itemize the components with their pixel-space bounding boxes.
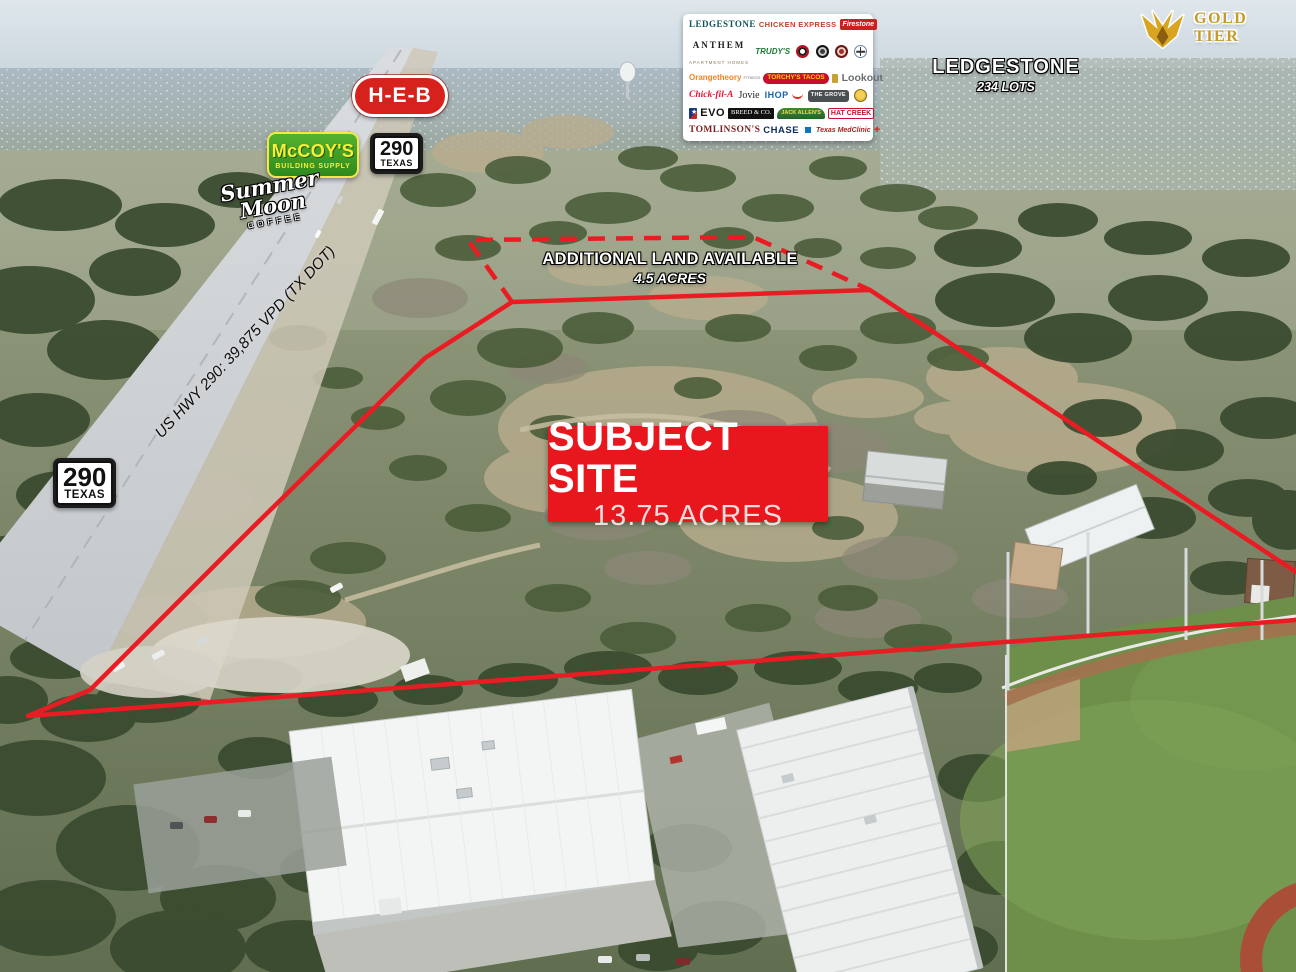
route-state: TEXAS [63,490,106,502]
red-roundel-icon [835,45,848,58]
evo-logo: EVO [700,108,725,119]
firestone-logo: Firestone [840,19,878,30]
logo-row: ★ EVO BREED & CO. JACK ALLEN'S HAT CREEK [689,108,867,120]
highway-290-shield-left: 290 TEXAS [53,458,116,508]
logo-row: Chick-fil-A Jovie IHOP THE GROVE [689,89,867,102]
jack-allens-logo: JACK ALLEN'S [777,108,825,120]
site-barn-open [863,451,948,509]
trudys-logo: TRUDY'S [755,48,790,56]
logo-row: OrangetheoryFITNESS TORCHY'S TACOS Looko… [689,73,867,84]
the-grove-logo: THE GROVE [808,90,849,102]
ledgestone-logo: LEDGESTONE [689,20,756,29]
tomlinsons-logo: TOMLINSON'S [689,126,760,136]
site-building-tan [1009,542,1062,590]
ihop-smile-icon [792,92,803,99]
anthem-logo: ANTHEM APARTMENT HOMES [689,36,749,68]
additional-land-label: ADDITIONAL LAND AVAILABLE 4.5 ACRES [538,250,802,286]
additional-land-acres: 4.5 ACRES [538,270,802,286]
chase-logo: CHASE [763,125,813,135]
route-number: 290 [63,464,106,490]
hat-creek-logo: HAT CREEK [828,108,874,119]
medical-cross-icon: + [874,125,880,136]
windmill-icon [854,45,867,58]
heb-label: H-E-B [368,84,431,108]
jovie-logo: Jovie [738,91,759,101]
lookout-gold-icon [832,74,838,83]
route-number: 290 [380,139,413,159]
chick-fil-a-logo: Chick-fil-A [689,91,733,101]
golds-gym-roundel-icon [854,89,867,102]
texas-medclinic-logo: Texas MedClinic+ [816,125,880,136]
lookout-logo: Lookout [832,73,883,84]
subject-site-callout: SUBJECT SITE 13.75 ACRES [548,426,828,522]
subject-site-acres: 13.75 ACRES [593,500,783,533]
additional-land-line1: ADDITIONAL LAND AVAILABLE [538,250,802,269]
subject-site-title: SUBJECT SITE [548,416,828,500]
aerial-site-map: LEDGESTONE CHICKEN EXPRESS Firestone ANT… [0,0,1296,972]
ihop-logo: IHOP [765,91,803,100]
ledgestone-name: LEDGESTONE [928,56,1084,79]
panda-express-roundel-icon [796,45,809,58]
breed-and-co-logo: BREED & CO. [728,108,774,119]
gold-tier-badge: GOLD TIER [1136,6,1296,50]
gold-crown-icon [1136,6,1189,50]
chicken-express-logo: CHICKEN EXPRESS [759,21,837,29]
retailer-logo-panel: LEDGESTONE CHICKEN EXPRESS Firestone ANT… [683,14,873,141]
logo-row: ANTHEM APARTMENT HOMES TRUDY'S [689,36,867,68]
chase-octagon-icon [803,125,813,135]
logo-row: LEDGESTONE CHICKEN EXPRESS Firestone [689,19,867,30]
mccoys-label: McCOY'S [269,141,357,162]
ledgestone-community-label: LEDGESTONE 234 LOTS [928,56,1084,94]
logo-row: TOMLINSON'S CHASE Texas MedClinic+ [689,125,867,136]
ledgestone-lots: 234 LOTS [928,80,1084,94]
texas-star-flag-icon: ★ [689,108,697,119]
highway-290-shield-top: 290 TEXAS [370,133,423,174]
gold-tier-label: GOLD TIER [1194,10,1296,46]
orangetheory-logo: OrangetheoryFITNESS [689,74,760,82]
route-state: TEXAS [380,159,413,168]
heb-badge: H-E-B [352,75,448,117]
dark-roundel-icon [816,45,829,58]
torchys-tacos-logo: TORCHY'S TACOS [763,73,828,84]
